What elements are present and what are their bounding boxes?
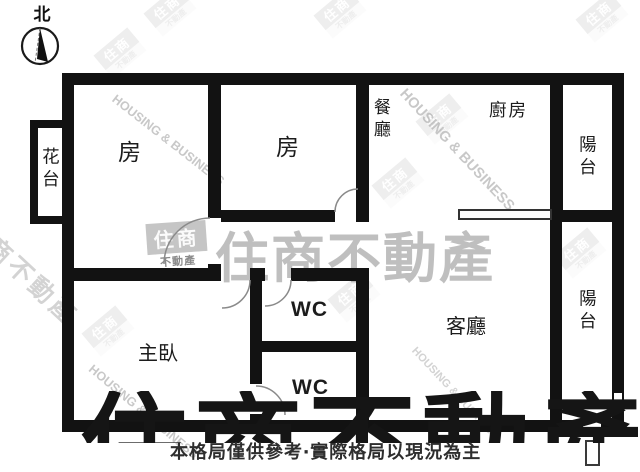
compass-north-label: 北 bbox=[34, 5, 51, 24]
room-label-flowerbed: 花台 bbox=[41, 147, 59, 192]
watermark-bottom-stamp: 住商不動產 bbox=[80, 391, 638, 443]
compass-needle-icon bbox=[37, 28, 48, 62]
door-arc-master bbox=[222, 280, 250, 308]
floor-plan: 住商不動產 住商不動產 住商不動產 住商不動產 住商不動產 住商不動產 住商不動… bbox=[0, 0, 640, 472]
door-arc-bedroom2 bbox=[335, 189, 358, 212]
door-arc-wc-upper bbox=[265, 280, 291, 306]
door-arc-bedroom1 bbox=[164, 218, 210, 264]
room-label-bedroom2: 房 bbox=[276, 135, 299, 159]
room-label-balcony-right: 陽台 bbox=[578, 289, 596, 334]
room-label-living: 客廳 bbox=[446, 317, 486, 338]
room-label-dining: 餐廳 bbox=[371, 98, 389, 142]
compass: 北 bbox=[18, 2, 66, 72]
disclaimer-text: 本格局僅供參考‧實際格局以現況為主 bbox=[170, 438, 481, 464]
bottom-stamp-text: 住商不動產 bbox=[80, 391, 638, 443]
room-label-wc-upper: WC bbox=[291, 299, 328, 321]
room-label-master: 主臥 bbox=[138, 344, 178, 365]
room-label-kitchen: 廚房 bbox=[489, 101, 528, 119]
room-label-bedroom1: 房 bbox=[118, 140, 141, 164]
room-label-balcony-top: 陽台 bbox=[578, 135, 596, 180]
